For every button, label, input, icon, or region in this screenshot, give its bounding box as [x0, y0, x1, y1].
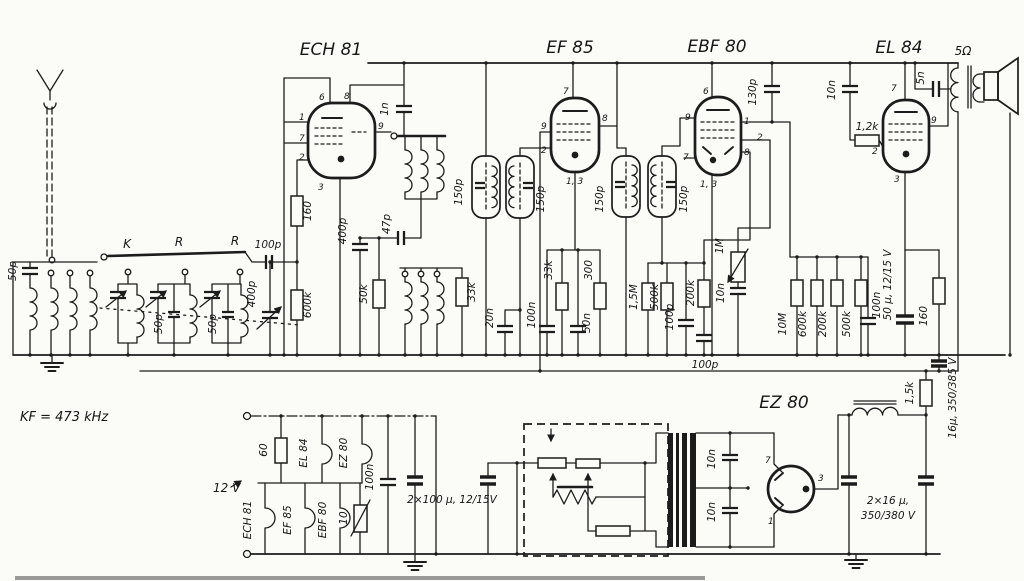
tube-ech81-title: ECH 81 — [300, 40, 362, 60]
tank-circuit-3: 50p — [200, 269, 248, 355]
tank-circuit-2: 50p — [146, 269, 197, 355]
psu-filter: 16μ, 350/385 V 1,5k 2×16 μ, 350/380 V — [838, 355, 959, 568]
tube-el84: EL 84 7 9 2 3 — [872, 38, 948, 250]
pin-label: 6 — [703, 87, 709, 97]
trimmer2-label: 50p — [153, 314, 165, 334]
c100n-heater-label: 100n — [364, 464, 376, 491]
speaker-cone-icon — [998, 58, 1018, 114]
pin-label: 6 — [319, 93, 325, 103]
pin-label: 3 — [318, 183, 324, 193]
r200k-b-label: 200k — [817, 310, 829, 337]
heater-ech81-label: ECH 81 — [242, 501, 254, 540]
pad-400p-label: 400p — [337, 217, 349, 244]
if1-cap2-label: 150p — [535, 185, 547, 212]
pin-label: 7 — [563, 87, 569, 97]
r50k-label: 50k — [358, 283, 370, 303]
rectifier-ez80: EZ 80 7 1 3 — [759, 393, 838, 547]
c50n-label: 50n — [581, 313, 593, 333]
tube-ef85-title: EF 85 — [546, 38, 594, 58]
r600k-label: 600k — [302, 291, 314, 318]
trim-400p-label: 400p — [246, 280, 258, 307]
c1n-label: 1n — [379, 102, 391, 115]
antenna-cap-label: 50p — [7, 261, 19, 281]
pin-label: 2 — [872, 147, 878, 157]
osc-coil-bank-lower: 33k — [400, 268, 478, 355]
pot-1m-label: 1M — [714, 238, 726, 254]
pin-label: 9 — [931, 116, 937, 126]
if1-cap1-label: 150p — [453, 178, 465, 205]
el84-cathode-network: 50 μ, 12/15 V 160 — [882, 249, 945, 355]
ground-icon — [41, 363, 63, 371]
tube-ez80-title: EZ 80 — [759, 393, 808, 413]
ground-icon — [845, 560, 867, 568]
heater-chain: 60 EL 84 EZ 80 ECH 81 EF 85 EBF 80 10 10… — [213, 413, 498, 571]
r1k2-label: 1,2k — [856, 121, 880, 133]
r10m-label: 10M — [777, 313, 789, 335]
c130p-label: 130p — [747, 78, 759, 105]
c2x16-label-1: 2×16 μ, — [867, 495, 909, 507]
c10n-psu1-label: 10n — [706, 449, 718, 469]
pin-label: 2 — [299, 153, 305, 163]
schematic-page: 50p K R R 50p 50p — [0, 0, 1024, 581]
osc-coil-bank-upper — [405, 136, 444, 199]
band-k-label: K — [123, 237, 132, 251]
if-frequency-note: KF = 473 kHz — [20, 410, 109, 425]
r160-k-label: 160 — [918, 306, 930, 326]
pin-label: 9 — [541, 122, 547, 132]
tube-el84-title: EL 84 — [875, 38, 922, 58]
supply-terminal-top — [244, 413, 251, 420]
pin-label: 7 — [683, 153, 689, 163]
pin-label: 8 — [744, 148, 750, 158]
heater-ebf80-label: EBF 80 — [317, 501, 329, 538]
pin-label: 7 — [299, 134, 305, 144]
c16u-label: 16μ, 350/385 V — [947, 357, 959, 439]
c10n-psu2-label: 10n — [706, 502, 718, 522]
heater-ez80-label: EZ 80 — [338, 437, 350, 468]
pin-label: 1, 3 — [566, 177, 583, 187]
schematic-canvas: 50p K R R 50p 50p — [0, 0, 1024, 581]
ground-icon — [404, 562, 426, 570]
pin-label: 7 — [891, 84, 897, 94]
c100n-a-label: 100n — [526, 302, 538, 329]
osc-100p-label: 100p — [255, 239, 282, 251]
pin-label: 1, 3 — [700, 180, 717, 190]
r500k-b-label: 500k — [841, 310, 853, 337]
pin-label: 2 — [541, 146, 547, 156]
r200k-a-label: 200k — [685, 279, 697, 306]
if2-cap2-label: 150p — [678, 185, 690, 212]
pin-label: 2 — [757, 133, 763, 143]
c100n-b-label: 100n — [871, 292, 883, 319]
c10n-a-label: 10n — [715, 283, 727, 303]
r1k5-label: 1,5k — [904, 381, 916, 405]
pin-label: 9 — [685, 113, 691, 123]
c2x100-label: 2×100 μ, 12/15V — [407, 494, 497, 506]
c50u-label: 50 μ, 12/15 V — [882, 249, 894, 321]
speaker — [980, 58, 1018, 355]
c100p-bus-label: 100p — [692, 359, 719, 371]
r600k-b-label: 600k — [797, 310, 809, 337]
r10-label: 10 — [338, 511, 350, 525]
c10n-b-label: 10n — [826, 80, 838, 100]
pin-label: 3 — [894, 175, 900, 185]
c5n-label: 5n — [915, 71, 927, 84]
notes: KF = 473 kHz — [20, 410, 109, 425]
band-r2-label: R — [231, 234, 239, 248]
detector-network: 1,5M 500k 100p 200k 100p 1M 10n — [628, 238, 748, 371]
vibrator-unit — [488, 424, 668, 556]
pin-label: 8 — [344, 92, 350, 102]
speaker-impedance-label: 5Ω — [955, 44, 973, 58]
pin-label: 1 — [299, 113, 305, 123]
tank-circuit-1 — [106, 269, 144, 355]
pin-label: 9 — [378, 122, 384, 132]
pin-label: 8 — [602, 114, 608, 124]
r160-label: 160 — [302, 201, 314, 221]
c2x16-label-2: 350/380 V — [861, 510, 916, 522]
c20n-label: 20n — [484, 308, 496, 328]
r500k-a-label: 500k — [649, 283, 661, 310]
r1m5-label: 1,5M — [628, 284, 640, 310]
c100p-det-label: 100p — [664, 303, 676, 330]
antenna — [37, 70, 63, 263]
r33k-a-label: 33k — [466, 281, 478, 301]
ef85-network: 20n 100n 33k 50n 300 — [484, 250, 606, 355]
r33k-b-label: 33k — [543, 259, 555, 279]
pin-label: 7 — [765, 456, 771, 466]
supply-terminal-bottom — [244, 551, 251, 558]
heater-el84-label: EL 84 — [298, 438, 310, 467]
band-r1-label: R — [175, 235, 183, 249]
pin-label: 3 — [818, 474, 824, 484]
r300-label: 300 — [583, 260, 595, 280]
scan-artifact — [15, 576, 705, 580]
power-transformer: 10n 10n — [668, 433, 774, 547]
if2-cap1-label: 150p — [594, 185, 606, 212]
heater-ef85-label: EF 85 — [282, 505, 294, 535]
r60-label: 60 — [258, 443, 270, 457]
pin-label: 1 — [744, 117, 750, 127]
tube-ebf80-title: EBF 80 — [687, 37, 746, 57]
pin-label: 1 — [768, 517, 774, 527]
divider-bank: 10M 600k 200k 500k 100n — [777, 257, 883, 355]
trimmer3-label: 50p — [207, 314, 219, 334]
c47p-label: 47p — [381, 214, 393, 234]
